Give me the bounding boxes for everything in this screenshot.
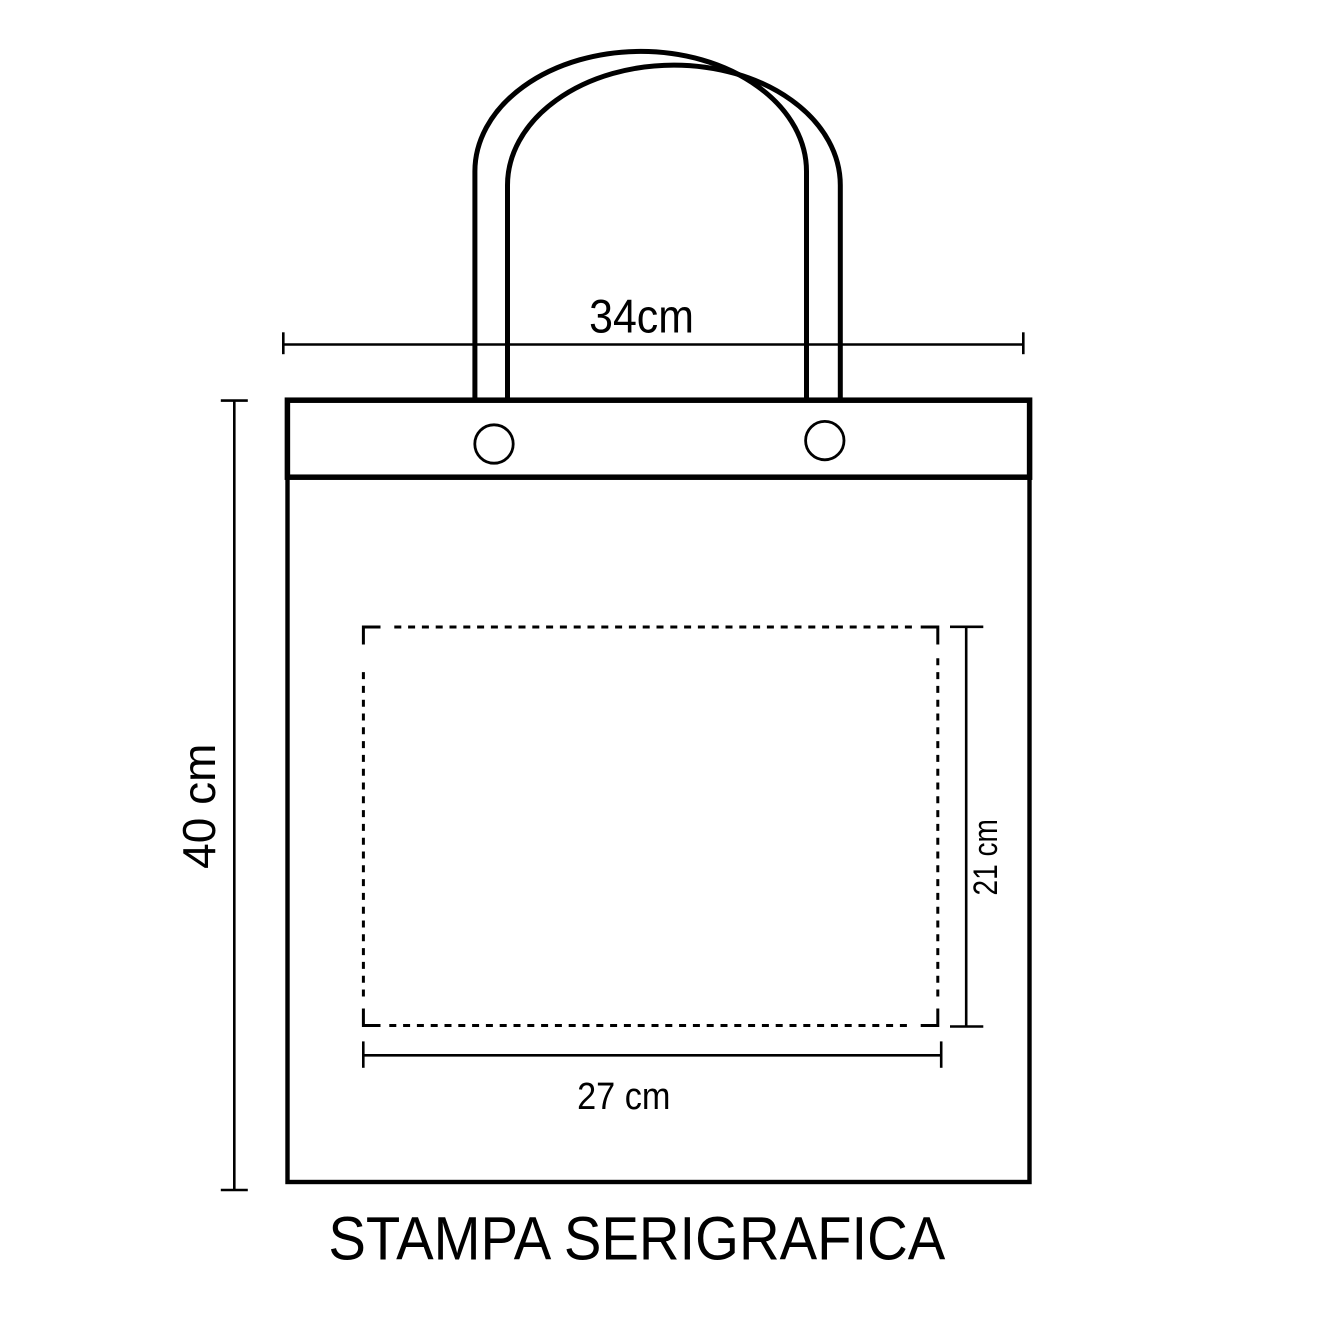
svg-text:27 cm: 27 cm <box>577 1075 670 1118</box>
svg-text:34cm: 34cm <box>589 289 694 343</box>
svg-text:21 cm: 21 cm <box>966 819 1004 895</box>
svg-text:40 cm: 40 cm <box>173 744 225 869</box>
svg-text:STAMPA SERIGRAFICA: STAMPA SERIGRAFICA <box>328 1205 946 1273</box>
